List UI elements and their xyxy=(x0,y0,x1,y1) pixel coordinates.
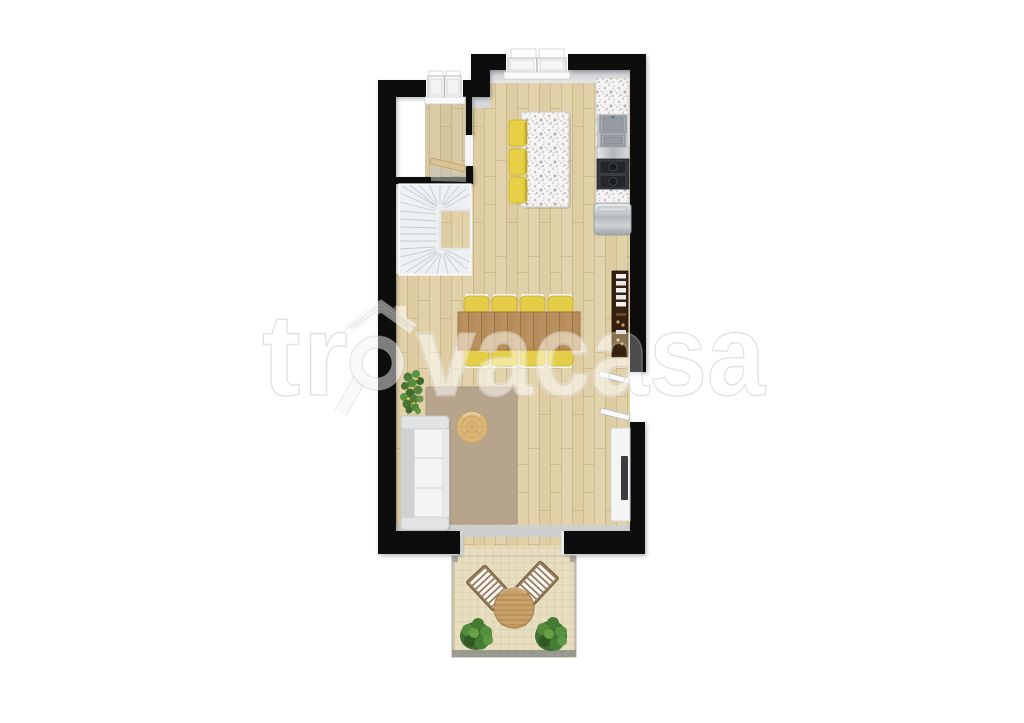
svg-text:tr: tr xyxy=(262,290,350,420)
svg-text:vacasa: vacasa xyxy=(417,290,766,420)
